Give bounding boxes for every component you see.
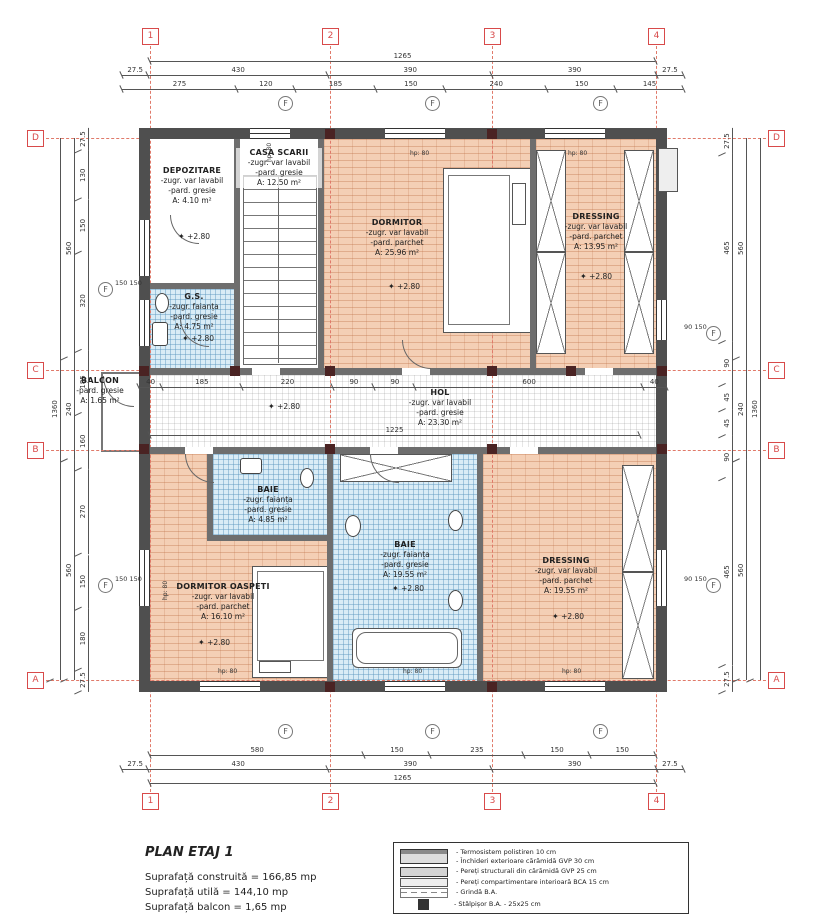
legend-row-exterior: - Termosistem polistiren 10 cm - Închide…: [400, 848, 682, 866]
axis-f-bubble-left-2: F: [98, 578, 113, 593]
grid-bubble-col3-top: 3: [484, 28, 501, 45]
grid-bubble-col3-bottom: 3: [484, 793, 501, 810]
dim-value: 320: [78, 252, 89, 351]
dim-value: 185: [295, 80, 377, 90]
dim-value: 150: [590, 746, 655, 756]
axis-f-bubble-bottom-3: F: [593, 724, 608, 739]
level-gs: ✦ +2.80: [182, 334, 214, 343]
dim-value: 150: [78, 555, 89, 608]
window-bottom-1: [200, 681, 260, 692]
axis-f-bubble-bottom-2: F: [425, 724, 440, 739]
dim-right-overall: 1360: [750, 138, 761, 680]
grid-bubble-col1-bottom: 1: [142, 793, 159, 810]
axis-f-bubble-top-2: F: [425, 96, 440, 111]
grid-bubble-rowB-left: B: [27, 442, 44, 459]
dim-value: 1265: [150, 774, 655, 784]
dim-value: 27.5: [657, 760, 683, 770]
dim-value: 160: [78, 413, 89, 469]
level-dormitor: ✦ +2.80: [388, 282, 420, 291]
window-dim-left-2: 150 150: [115, 576, 142, 584]
grid-bubble-col2-bottom: 2: [322, 793, 339, 810]
dim-right-inner: 27.54659045459046527.5: [722, 128, 733, 692]
dim-value: 560: [64, 138, 75, 358]
dim-value: 90: [722, 436, 733, 479]
level-dressing-top: ✦ +2.80: [580, 272, 612, 281]
dim-value: 580: [150, 746, 364, 756]
room-label-baie-mare: BAIE -zugr. faianța -pard. gresie A: 19.…: [358, 540, 452, 580]
column-b1: [139, 444, 149, 454]
wardrobe-dressing-bottom-1: [622, 465, 654, 572]
door-gap-dormitor: [402, 368, 430, 375]
toilet-baie-mare-2: [448, 590, 463, 611]
dim-value: 560: [736, 460, 747, 680]
door-gap-casa-scarii: [252, 368, 280, 375]
room-label-casa-scarii: CASA SCARII -zugr. var lavabil -pard. gr…: [236, 148, 322, 188]
door-gap-dressing-top: [585, 368, 613, 375]
axis-f-bubble-top-3: F: [593, 96, 608, 111]
dim-value: 150: [364, 746, 429, 756]
column-c4: [487, 366, 497, 376]
axis-f-bubble-bottom-1: F: [278, 724, 293, 739]
dim-value: 185: [162, 378, 241, 388]
flue-shaft: [658, 148, 678, 192]
dim-top-row2: 27.543039039027.5: [122, 66, 684, 76]
dim-value: 240: [736, 358, 747, 460]
legend-row-structural: - Pereți structurali din cărămidă GVP 25…: [400, 867, 682, 877]
dim-left-inner: 27.513015032018516027015018027.5: [78, 128, 89, 692]
wall-baie-dressing: [477, 454, 483, 681]
staircase: [243, 175, 317, 365]
dim-value: 180: [78, 608, 89, 669]
sink-baie-mare: [345, 515, 361, 537]
grid-bubble-rowA-right: A: [768, 672, 785, 689]
parapet-label-2: hp: 80: [410, 150, 429, 157]
column-d1: [325, 129, 335, 139]
level-depozitare: ✦ +2.80: [178, 232, 210, 241]
wall-baie-mica-bottom: [207, 535, 333, 541]
window-bottom-2: [385, 681, 445, 692]
door-gap-baie-mare: [370, 447, 398, 454]
parapet-label-5: hp: 80: [218, 668, 237, 675]
window-dim-right-2: 90 150: [684, 576, 707, 584]
window-right-1: [656, 300, 667, 340]
legend-swatch-structural-wall: [400, 867, 448, 877]
window-top-1: [385, 128, 445, 139]
area-built: Suprafață construită = 166,85 mp: [145, 870, 317, 885]
dim-value: 150: [78, 199, 89, 252]
window-left-1: [139, 220, 150, 276]
dim-value: 90: [333, 378, 374, 388]
legend-swatch-partition-wall: [400, 878, 448, 887]
column-a2: [487, 682, 497, 692]
dim-bottom-overall: 1265: [150, 774, 656, 784]
wardrobe-dressing-top-right-2: [624, 252, 654, 354]
level-dressing-bottom: ✦ +2.80: [552, 612, 584, 621]
dim-value: 145: [616, 80, 683, 90]
dim-value: 1360: [750, 138, 761, 680]
grid-bubble-col2-top: 2: [322, 28, 339, 45]
room-label-gs: G.S. -zugr. faianța -pard. gresie A: 4.7…: [158, 292, 230, 332]
dim-value: 430: [148, 66, 328, 76]
dim-left-overall: 1360: [50, 138, 61, 680]
bathtub: [352, 628, 462, 668]
column-b2: [325, 444, 335, 454]
column-c1: [139, 366, 149, 376]
room-label-dressing-bottom: DRESSING -zugr. var lavabil -pard. parch…: [520, 556, 612, 596]
grid-bubble-col4-top: 4: [648, 28, 665, 45]
dim-value: 1225: [150, 426, 639, 436]
wall-oaspeti-baie: [327, 454, 333, 681]
dim-value: 130: [78, 151, 89, 199]
wall-dormitor-dressing: [530, 139, 536, 368]
legend-box: - Termosistem polistiren 10 cm - Închide…: [393, 842, 689, 914]
legend-row-beam: - Grindă B.A.: [400, 888, 682, 898]
grid-bubble-col1-top: 1: [142, 28, 159, 45]
dim-value: 45: [722, 384, 733, 410]
area-balcony: Suprafață balcon = 1,65 mp: [145, 900, 317, 915]
dim-value: 27.5: [78, 128, 89, 151]
exterior-wall-right: [656, 128, 667, 692]
wardrobe-dressing-top-left-2: [536, 252, 566, 354]
dim-value: 27.5: [722, 666, 733, 692]
dim-value: 560: [64, 460, 75, 680]
column-a1: [325, 682, 335, 692]
dim-value: 40: [643, 378, 666, 388]
room-label-baie-mica: BAIE -zugr. faianța -pard. gresie A: 4.8…: [228, 485, 308, 525]
grid-bubble-rowD-right: D: [768, 130, 785, 147]
window-top-3: [250, 128, 290, 139]
dim-value: 390: [328, 66, 492, 76]
dim-top-row3: 275120185150240150145: [122, 80, 684, 90]
dim-value: 150: [376, 80, 445, 90]
wall-hol-bottom: [139, 447, 667, 454]
mattress: [448, 175, 510, 325]
dim-value: 465: [722, 154, 733, 342]
dim-left-mid: 560240560: [64, 138, 75, 680]
window-right-2: [656, 550, 667, 606]
dim-value: 1360: [50, 138, 61, 680]
dim-top-overall: 1265: [150, 52, 656, 62]
column-c6: [657, 366, 667, 376]
sink-baie-mica: [240, 458, 262, 474]
dim-value: 120: [237, 80, 295, 90]
room-label-dormitor-oaspeti: DORMITOR OASPETI -zugr. var lavabil -par…: [168, 582, 278, 622]
dim-value: 90: [722, 342, 733, 385]
dim-bottom-row1: 580150235150150: [150, 746, 656, 756]
parapet-label-7: hp: 80: [562, 668, 581, 675]
column-b4: [657, 444, 667, 454]
dim-value: 185: [78, 351, 89, 414]
window-bottom-3: [545, 681, 605, 692]
window-top-2: [545, 128, 605, 139]
dim-value: 27.5: [722, 128, 733, 154]
dim-value: 27.5: [657, 66, 683, 76]
axis-f-bubble-left-1: F: [98, 282, 113, 297]
dim-value: 1265: [150, 52, 655, 62]
parapet-label-1: hp: 80: [266, 143, 273, 162]
dim-value: 27.5: [78, 669, 89, 692]
dim-value: 45: [722, 410, 733, 436]
plan-title: PLAN ETAJ 1: [145, 845, 317, 860]
legend-swatch-exterior-wall: [400, 849, 448, 864]
parapet-label-6: hp: 80: [403, 668, 422, 675]
dim-right-mid: 560240560: [736, 138, 747, 680]
dim-value: 275: [122, 80, 237, 90]
pillow: [512, 183, 526, 225]
grid-bubble-rowB-right: B: [768, 442, 785, 459]
door-gap-oaspeti: [185, 447, 213, 454]
dim-value: 270: [78, 469, 89, 554]
exterior-wall-left: [139, 128, 150, 692]
room-label-hol: HOL -zugr. var lavabil -pard. gresie A: …: [390, 388, 490, 428]
staircase-midline: [278, 175, 279, 363]
toilet-baie-mare-1: [448, 510, 463, 531]
legend-row-column: - Stâlpișor B.A. - 25x25 cm: [400, 899, 682, 910]
wardrobe-dressing-bottom-2: [622, 572, 654, 679]
bathtub-inner: [356, 632, 458, 664]
floor-plan-sheet: 1 2 3 4 1 2 3 4 D C B A D C B A F F F F …: [0, 0, 828, 918]
wall-depozitare-gs: [150, 283, 240, 289]
column-b3: [487, 444, 497, 454]
dim-value: 90: [374, 378, 415, 388]
area-usable: Suprafață utilă = 144,10 mp: [145, 885, 317, 900]
grid-bubble-rowC-right: C: [768, 362, 785, 379]
door-gap-dressing-bottom: [510, 447, 538, 454]
parapet-label-3: hp: 80: [568, 150, 587, 157]
room-label-dressing-top: DRESSING -zugr. var lavabil -pard. parch…: [552, 212, 640, 252]
bed-dormitor: [443, 168, 531, 333]
column-c3: [325, 366, 335, 376]
parapet-label-4: hp: 80: [162, 581, 169, 600]
grid-bubble-rowC-left: C: [27, 362, 44, 379]
dim-value: 150: [524, 746, 589, 756]
pillow: [259, 661, 291, 673]
title-block: PLAN ETAJ 1 Suprafață construită = 166,8…: [145, 845, 317, 915]
column-c5: [566, 366, 576, 376]
dim-hall-chain: 40185220909060040: [139, 378, 667, 388]
dim-value: 240: [64, 358, 75, 460]
grid-bubble-rowA-left: A: [27, 672, 44, 689]
axis-f-bubble-top-1: F: [278, 96, 293, 111]
dim-value: 240: [445, 80, 547, 90]
grid-bubble-col4-bottom: 4: [648, 793, 665, 810]
dim-value: 235: [430, 746, 525, 756]
dim-hall-overall: 1225: [150, 426, 640, 436]
window-left-2: [139, 300, 150, 346]
legend-swatch-beam: [400, 888, 448, 898]
axis-f-bubble-right-1: F: [706, 326, 721, 341]
dim-value: 390: [492, 66, 656, 76]
dim-value: 220: [242, 378, 334, 388]
room-label-dormitor: DORMITOR -zugr. var lavabil -pard. parch…: [352, 218, 442, 258]
level-hol: ✦ +2.80: [268, 402, 300, 411]
axis-f-bubble-right-2: F: [706, 578, 721, 593]
column-c2: [230, 366, 240, 376]
dim-value: 150: [547, 80, 616, 90]
dim-value: 560: [736, 138, 747, 358]
window-dim-right-1: 90 150: [684, 324, 707, 332]
dim-value: 465: [722, 478, 733, 666]
dim-value: 390: [492, 760, 656, 770]
room-label-depozitare: DEPOZITARE -zugr. var lavabil -pard. gre…: [148, 166, 236, 206]
dim-bottom-row2: 27.543039039027.5: [122, 760, 684, 770]
dim-value: 600: [415, 378, 642, 388]
window-dim-left-1: 150 150: [115, 280, 142, 288]
room-depozitare-floor: [150, 139, 234, 283]
dim-value: 390: [328, 760, 492, 770]
level-dormitor-oaspeti: ✦ +2.80: [198, 638, 230, 647]
level-baie-mare: ✦ +2.80: [392, 584, 424, 593]
legend-swatch-column: [418, 899, 429, 910]
dim-value: 430: [148, 760, 328, 770]
grid-bubble-rowD-left: D: [27, 130, 44, 147]
legend-row-bca: - Pereți compartimentare interioară BCA …: [400, 878, 682, 887]
column-d2: [487, 129, 497, 139]
